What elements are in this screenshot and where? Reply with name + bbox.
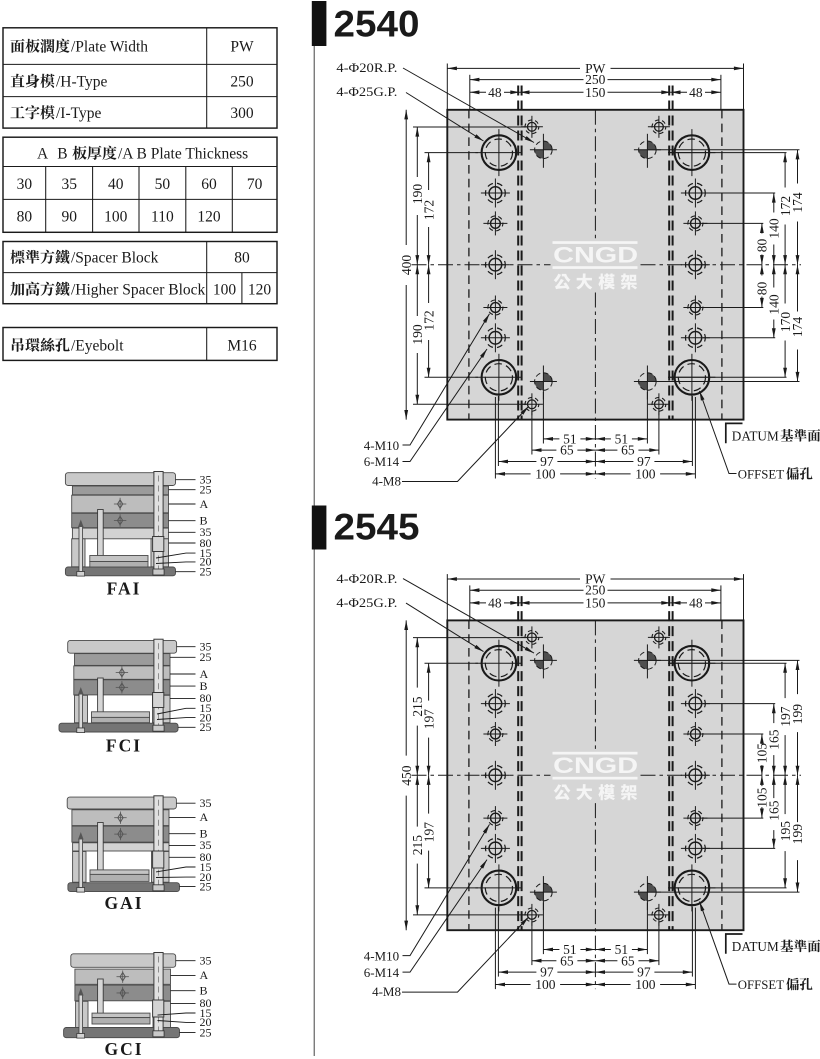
svg-text:197: 197 [421, 822, 436, 843]
svg-text:165: 165 [767, 800, 782, 821]
svg-text:/H-Type: /H-Type [56, 74, 108, 91]
svg-text:A: A [200, 497, 209, 511]
svg-text:70: 70 [247, 176, 263, 193]
svg-text:120: 120 [197, 209, 221, 226]
svg-text:25: 25 [200, 879, 212, 893]
svg-text:/I-Type: /I-Type [56, 105, 102, 122]
svg-text:80: 80 [755, 239, 770, 253]
svg-text:250: 250 [230, 74, 254, 91]
svg-text:80: 80 [234, 250, 250, 267]
svg-text:/Spacer Block: /Spacer Block [71, 250, 159, 267]
svg-text:2540: 2540 [334, 2, 420, 44]
svg-text:80: 80 [17, 209, 33, 226]
svg-text:/Eyebolt: /Eyebolt [71, 338, 124, 355]
svg-text:450: 450 [399, 765, 414, 786]
svg-text:2545: 2545 [334, 506, 420, 548]
svg-text:FCI: FCI [106, 736, 142, 756]
svg-text:199: 199 [790, 824, 805, 845]
svg-text:400: 400 [399, 255, 414, 276]
svg-text:100: 100 [213, 282, 237, 299]
svg-text:172: 172 [421, 200, 436, 220]
svg-text:FAI: FAI [107, 579, 142, 599]
svg-text:174: 174 [790, 192, 805, 213]
svg-text:174: 174 [790, 317, 805, 338]
svg-text:25: 25 [200, 1025, 212, 1039]
svg-text:GCI: GCI [104, 1039, 143, 1059]
svg-text:25: 25 [200, 483, 212, 497]
svg-text:35: 35 [200, 954, 212, 968]
svg-text:A B: A B [37, 146, 71, 163]
svg-text:165: 165 [767, 729, 782, 750]
svg-text:/Plate Width: /Plate Width [71, 39, 148, 56]
svg-text:100: 100 [104, 209, 128, 226]
svg-text:50: 50 [155, 176, 171, 193]
svg-text:M16: M16 [227, 338, 257, 355]
svg-text:35: 35 [200, 796, 212, 810]
svg-text:25: 25 [200, 650, 212, 664]
svg-text:140: 140 [767, 294, 782, 315]
svg-text:40: 40 [108, 176, 124, 193]
svg-text:PW: PW [230, 39, 254, 56]
svg-text:/A B Plate Thickness: /A B Plate Thickness [118, 146, 248, 163]
svg-text:199: 199 [790, 704, 805, 725]
svg-text:30: 30 [17, 176, 33, 193]
svg-text:300: 300 [230, 105, 254, 122]
svg-text:25: 25 [200, 565, 212, 579]
svg-text:GAI: GAI [104, 893, 143, 913]
svg-text:140: 140 [767, 218, 782, 239]
svg-text:/Higher Spacer Block: /Higher Spacer Block [71, 282, 206, 299]
svg-text:80: 80 [755, 282, 770, 296]
svg-text:90: 90 [61, 209, 77, 226]
svg-text:A: A [200, 810, 209, 824]
svg-text:60: 60 [201, 176, 217, 193]
svg-text:A: A [200, 968, 209, 982]
svg-text:110: 110 [151, 209, 174, 226]
svg-text:197: 197 [421, 709, 436, 730]
svg-text:120: 120 [248, 282, 272, 299]
svg-text:25: 25 [200, 720, 212, 734]
svg-text:35: 35 [61, 176, 77, 193]
svg-text:172: 172 [421, 310, 436, 330]
